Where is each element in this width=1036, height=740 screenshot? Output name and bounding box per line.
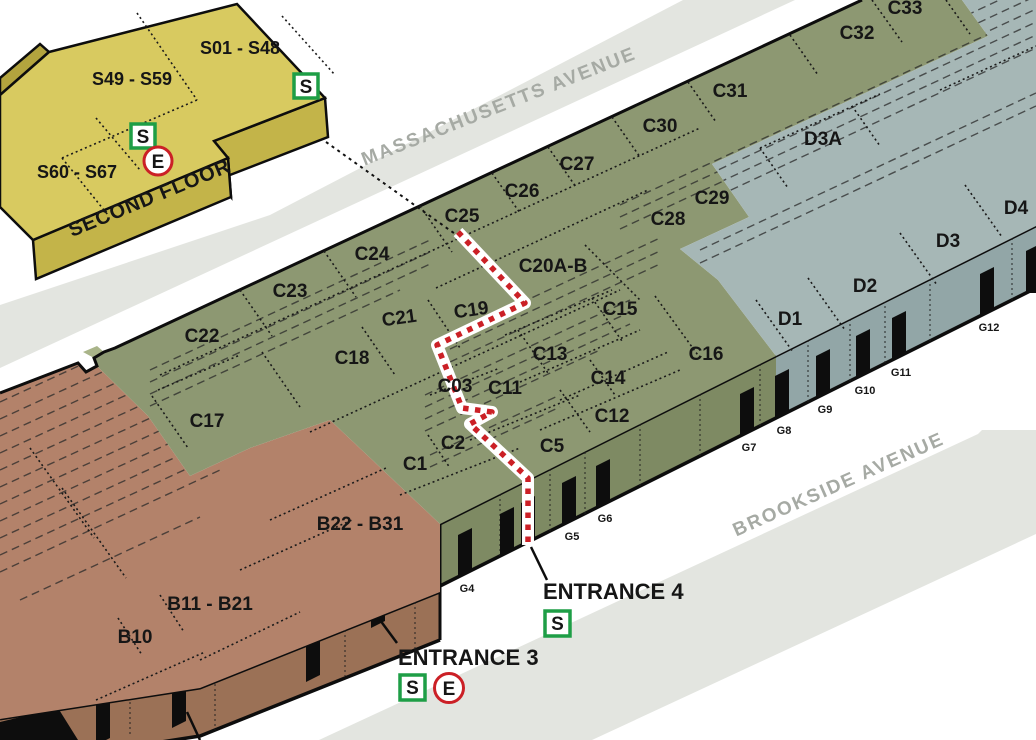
room-label-c25: C25 bbox=[445, 206, 480, 227]
room-label-c5: C5 bbox=[540, 436, 565, 457]
door-label-g5: G5 bbox=[565, 531, 580, 543]
door-label-g10: G10 bbox=[855, 385, 876, 397]
door-g9 bbox=[816, 349, 830, 398]
map-canvas: MASSACHUSETTS AVENUE BROOKSIDE AVENUE SE… bbox=[0, 0, 1036, 740]
room-label-c12: C12 bbox=[595, 406, 630, 427]
door-g4 bbox=[458, 528, 472, 577]
door-label-g8: G8 bbox=[777, 425, 792, 437]
stairs-icon: S bbox=[131, 124, 155, 148]
elevator-icon-letter: E bbox=[443, 679, 456, 700]
room-label-c03: C03 bbox=[438, 376, 473, 397]
room-label-c2: C2 bbox=[441, 433, 465, 454]
room-label-b22: B22 - B31 bbox=[317, 514, 404, 535]
room-label-c1: C1 bbox=[403, 454, 428, 475]
room-label-c20: C20A-B bbox=[519, 256, 588, 277]
door-g12 bbox=[980, 267, 994, 316]
second-floor-block bbox=[0, 4, 335, 279]
stairs-icon-letter: S bbox=[406, 678, 419, 699]
leasing-map: MASSACHUSETTS AVENUE BROOKSIDE AVENUE SE… bbox=[0, 0, 1036, 740]
elevator-icon-letter: E bbox=[152, 152, 165, 173]
room-label-d2: D2 bbox=[853, 276, 877, 297]
door-label-g12: G12 bbox=[979, 322, 1000, 334]
room-label-s49: S49 - S59 bbox=[92, 69, 172, 89]
room-label-c22: C22 bbox=[185, 326, 220, 347]
door-g7 bbox=[740, 387, 754, 436]
entrance4-leader-line bbox=[531, 547, 547, 580]
stairs-icon-letter: S bbox=[300, 77, 313, 98]
room-label-d3a: D3A bbox=[804, 129, 842, 150]
room-label-s01: S01 - S48 bbox=[200, 38, 280, 58]
room-label-c13: C13 bbox=[533, 344, 568, 365]
door-g5 bbox=[562, 476, 576, 525]
door-label-g4: G4 bbox=[460, 583, 476, 595]
room-label-c28: C28 bbox=[651, 209, 686, 230]
elevator-icon: E bbox=[144, 147, 172, 175]
room-label-c23: C23 bbox=[273, 281, 308, 302]
room-label-c32: C32 bbox=[840, 23, 875, 44]
room-label-c33: C33 bbox=[888, 0, 923, 19]
room-label-c26: C26 bbox=[505, 181, 540, 202]
room-label-d1: D1 bbox=[778, 309, 803, 330]
door-label-g6: G6 bbox=[598, 513, 613, 525]
room-label-c16: C16 bbox=[689, 344, 724, 365]
room-label-c27: C27 bbox=[560, 154, 595, 175]
stairs-icon: S bbox=[294, 74, 318, 98]
room-label-c17: C17 bbox=[190, 411, 225, 432]
room-label-c24: C24 bbox=[355, 244, 390, 265]
door-label-g9: G9 bbox=[818, 404, 833, 416]
room-label-c14: C14 bbox=[591, 368, 626, 389]
room-label-c18: C18 bbox=[335, 348, 370, 369]
room-label-b10: B10 bbox=[118, 627, 153, 648]
room-label-c15: C15 bbox=[603, 299, 638, 320]
stairs-icon: S bbox=[400, 675, 425, 700]
entrance3-label: ENTRANCE 3 bbox=[398, 645, 539, 670]
room-label-d3: D3 bbox=[936, 231, 960, 252]
door bbox=[1026, 246, 1036, 293]
room-label-b11: B11 - B21 bbox=[167, 594, 253, 615]
elevator-icon: E bbox=[435, 674, 464, 703]
door-g8 bbox=[775, 369, 789, 418]
door bbox=[500, 507, 514, 556]
stairs-icon: S bbox=[545, 611, 570, 636]
room-label-s60: S60 - S67 bbox=[37, 162, 117, 182]
room-label-c11: C11 bbox=[488, 378, 522, 399]
room-label-d4: D4 bbox=[1004, 198, 1029, 219]
room-label-c29: C29 bbox=[695, 188, 730, 209]
room-label-c30: C30 bbox=[643, 116, 678, 137]
door-g11 bbox=[892, 311, 906, 360]
door-label-g11: G11 bbox=[891, 367, 911, 379]
door-label-g7: G7 bbox=[742, 442, 757, 454]
stairs-icon-letter: S bbox=[551, 614, 564, 635]
door-g6 bbox=[596, 459, 610, 508]
room-label-c31: C31 bbox=[713, 81, 748, 102]
stairs-icon-letter: S bbox=[137, 127, 150, 148]
door-g10 bbox=[856, 329, 870, 378]
entrance4-label: ENTRANCE 4 bbox=[543, 579, 684, 604]
